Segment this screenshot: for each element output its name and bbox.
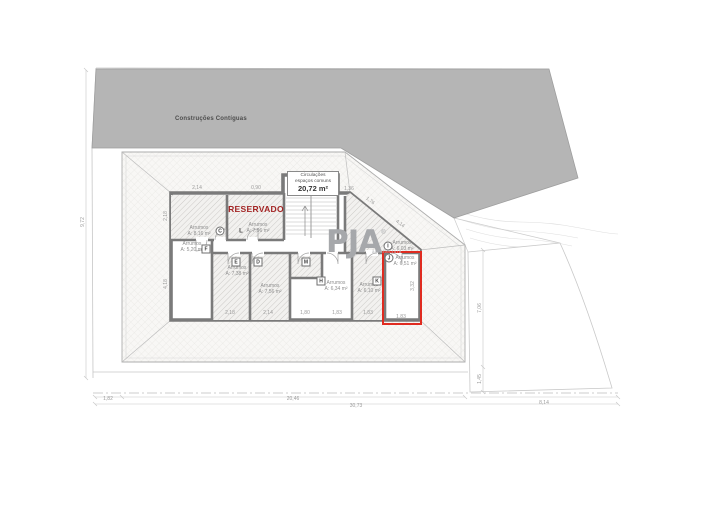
room-i-label: ArrumosA: 6,03 m²: [390, 241, 413, 252]
room-marker-f: F: [202, 245, 211, 254]
dim-right-j: 3,32: [410, 281, 416, 291]
room-marker-j: J: [385, 254, 394, 263]
dim-left-2: 4,18: [163, 279, 169, 289]
room-l-label: ArrumosA: 7,96 m²: [246, 223, 269, 234]
room-f-label: ArrumosA: 5,20 m²: [180, 242, 203, 253]
dim-lot-v-1: 7,06: [477, 303, 483, 313]
room-marker-m: M: [302, 258, 311, 267]
registered-mark: ®: [381, 230, 385, 236]
dim-top-c: 2,14: [192, 185, 202, 191]
dim-bottom-k: 1,83: [363, 310, 373, 316]
room-marker-h: H: [317, 277, 326, 286]
circulation-area-value: 20,72 m²: [288, 184, 338, 193]
dim-lot-v-2: 1,45: [477, 374, 483, 384]
room-e-label: ArrumosA: 7,38 m²: [225, 266, 248, 277]
room-marker-d: D: [254, 258, 263, 267]
pja-logo-text: PJA: [326, 224, 381, 260]
reserved-label: RESERVADO: [227, 204, 285, 214]
room-j-label: ArrumosA: 6,51 m²: [393, 256, 416, 267]
room-marker-c: C: [216, 227, 225, 236]
dim-outer-left: 1,82: [103, 396, 113, 402]
pja-logo: PJA® arquitectura: [326, 227, 386, 258]
dim-bottom-h2: 1,83: [332, 310, 342, 316]
dim-outer-right: 8,14: [539, 400, 549, 406]
adjacent-lot: [468, 243, 612, 392]
room-marker-e: E: [232, 258, 241, 267]
circulation-area-box: Circulações espaços comuns 20,72 m²: [287, 171, 339, 196]
room-d-label: ArrumosA: 7,56 m²: [258, 284, 281, 295]
terrain-contours: [460, 212, 618, 247]
room-c-label: ArrumosA: 8,16 m²: [187, 226, 210, 237]
dim-outer-mid: 20,46: [287, 396, 300, 402]
floor-plan-sheet: Construções Contíguas Circulações espaço…: [0, 0, 716, 506]
room-marker-i: I: [384, 242, 393, 251]
dim-outer-total: 30,73: [350, 403, 363, 409]
dim-bottom-h1: 1,80: [300, 310, 310, 316]
dim-outer-v-left: 9,72: [80, 217, 86, 227]
room-marker-k: K: [373, 277, 382, 286]
adjacent-constructions-label: Construções Contíguas: [175, 116, 247, 122]
dim-left-1: 2,18: [163, 211, 169, 221]
dim-bottom-e: 2,18: [225, 310, 235, 316]
dim-bottom-j: 1,83: [396, 314, 406, 320]
dim-top-reserved: 0,90: [251, 185, 261, 191]
room-marker-l: L: [237, 227, 246, 236]
dim-bottom-d: 2,14: [263, 310, 273, 316]
room-h-label: ArrumosA: 6,34 m²: [324, 281, 347, 292]
dim-top-right: 1,36: [344, 186, 354, 192]
